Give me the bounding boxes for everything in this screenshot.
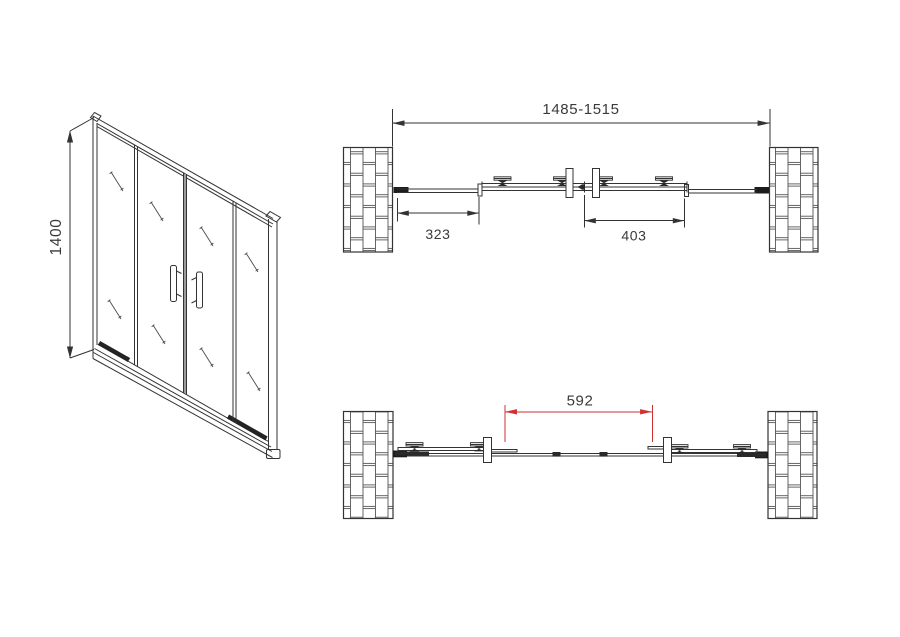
floor-guide-right <box>600 452 608 457</box>
floor-guide-left <box>553 452 561 457</box>
front-isometric-view: 1400 <box>48 113 281 459</box>
dimension-opening-592: 592 <box>505 393 653 443</box>
stacked-panels-left <box>393 438 517 463</box>
technical-drawing: 1400 <box>0 0 900 637</box>
dimension-overall-width: 1485-1515 <box>392 101 770 147</box>
dim-text-fixed-panel: 323 <box>425 226 450 242</box>
glass-panel-dividers <box>135 145 237 423</box>
brick-wall-top-right <box>770 148 819 253</box>
brick-wall-top-left <box>344 148 393 253</box>
brick-wall-bottom-left <box>344 412 394 519</box>
slider-bottom-guide-left <box>99 343 129 360</box>
door-left-stile <box>93 116 97 359</box>
handle-plan-right-open <box>664 438 672 463</box>
brick-wall-bottom-right <box>768 412 817 519</box>
dim-text-height: 1400 <box>48 219 65 256</box>
panel-end-profile-left <box>478 184 482 196</box>
dimension-fixed-panel-323: 323 <box>397 197 479 242</box>
slider-bottom-guide-right <box>228 417 267 439</box>
door-bottom-rail <box>93 343 273 458</box>
door-right-stile <box>267 219 281 459</box>
stacked-panels-right <box>648 438 768 463</box>
center-meeting-mark <box>577 184 585 189</box>
dim-text-opening: 592 <box>567 393 594 410</box>
plan-view-open: 592 <box>344 393 818 519</box>
drawing-svg: 1400 <box>0 0 900 637</box>
handle-plan-left-open <box>484 438 492 463</box>
plan-view-closed: 1485-1515 323 403 <box>344 101 819 252</box>
dim-text-overall-width: 1485-1515 <box>542 101 619 118</box>
track-assembly-open <box>393 438 768 463</box>
track-assembly-closed <box>394 169 770 198</box>
handle-plan-left-closed <box>566 169 573 198</box>
handle-plan-right-closed <box>593 169 600 198</box>
dimension-door-panel-403: 403 <box>584 195 684 244</box>
dimension-height-1400: 1400 <box>48 118 94 359</box>
dim-text-door-panel: 403 <box>621 228 646 244</box>
